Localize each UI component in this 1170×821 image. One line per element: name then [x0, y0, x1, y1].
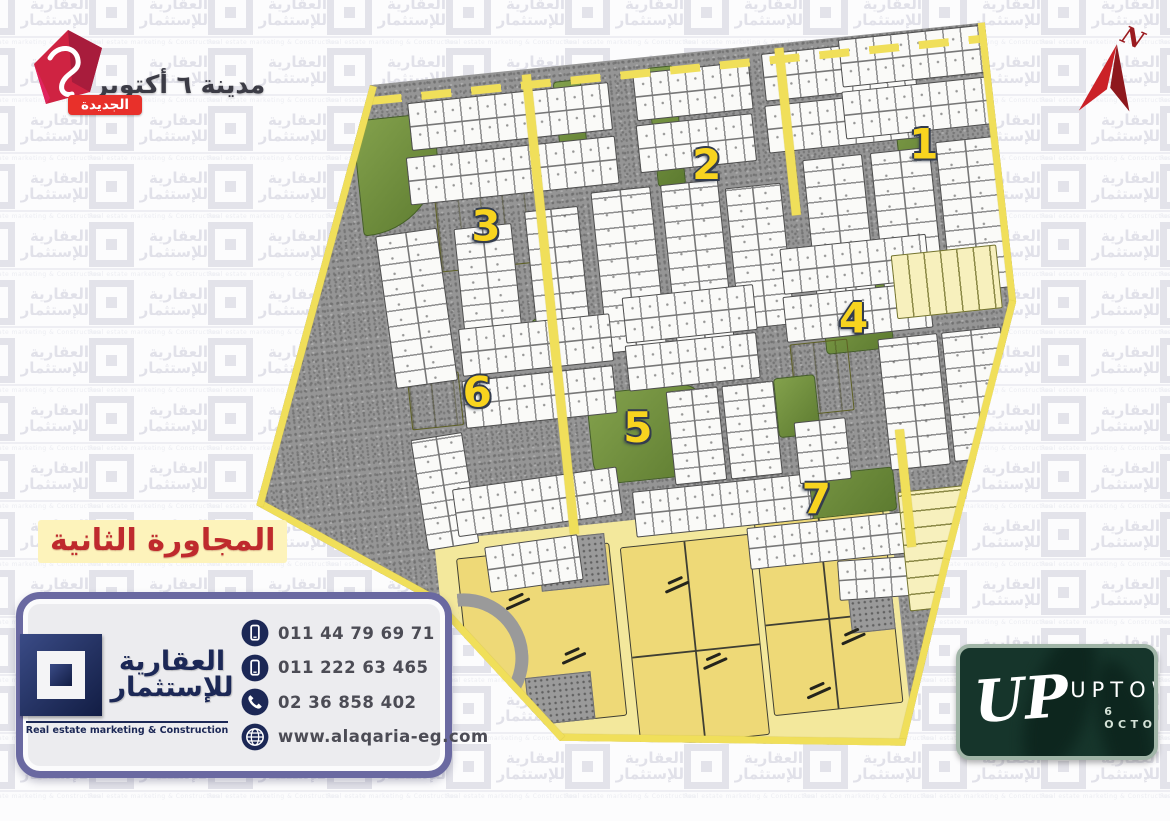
plot-block [666, 386, 728, 485]
contact-row: www.alaqaria-eg.com [241, 723, 489, 751]
contact-row: 011 222 63 465 [241, 654, 489, 682]
brand-logo: العقارية للإستثمار Real estate marketing… [33, 634, 221, 736]
watermark-tile: العقاريةللإستثمارReal estate marketing &… [1041, 220, 1160, 278]
watermark-tile: العقاريةللإستثمارReal estate marketing &… [0, 394, 89, 452]
mobile-icon [241, 619, 269, 647]
neighbourhood-title: المجاورة الثانية [38, 520, 287, 563]
watermark-tile: العقاريةللإستثمارReal estate marketing &… [1160, 104, 1170, 162]
contact-row: 02 36 858 402 [241, 688, 489, 716]
plot-block [721, 380, 783, 479]
district-3-label: 3 [471, 202, 500, 251]
watermark-tile: العقاريةللإستثمارReal estate marketing &… [0, 162, 89, 220]
service-gray-lot [525, 671, 596, 726]
globe-icon [241, 723, 269, 751]
perimeter-road [250, 83, 377, 507]
watermark-tile: العقاريةللإستثمارReal estate marketing &… [89, 162, 208, 220]
watermark-tile: العقاريةللإستثمارReal estate marketing &… [89, 452, 208, 510]
watermark-tile: العقاريةللإستثمارReal estate marketing &… [89, 220, 208, 278]
watermark-tile: العقاريةللإستثمارReal estate marketing &… [1160, 0, 1170, 46]
watermark-tile: العقاريةللإستثمارReal estate marketing &… [0, 336, 89, 394]
plot-block [877, 333, 950, 471]
watermark-tile: العقاريةللإستثمارReal estate marketing &… [1160, 46, 1170, 104]
watermark-tile: العقاريةللإستثمارReal estate marketing &… [1160, 394, 1170, 452]
mobile-icon [241, 654, 269, 682]
brand-square-icon [20, 634, 102, 716]
watermark-tile: العقاريةللإستثمارReal estate marketing &… [1041, 510, 1160, 568]
watermark-tile: العقاريةللإستثمارReal estate marketing &… [1041, 336, 1160, 394]
watermark-tile: العقاريةللإستثمارReal estate marketing &… [1041, 452, 1160, 510]
watermark-tile: العقاريةللإستثمارReal estate marketing &… [1160, 452, 1170, 510]
watermark-tile: العقاريةللإستثمارReal estate marketing &… [1041, 162, 1160, 220]
watermark-tile: العقاريةللإستثمارReal estate marketing &… [1041, 278, 1160, 336]
watermark-tile: العقاريةللإستثمارReal estate marketing &… [1160, 278, 1170, 336]
watermark-tile: العقاريةللإستثمارReal estate marketing &… [89, 394, 208, 452]
city-badge: الجديدة [68, 95, 142, 115]
service-plot [620, 534, 770, 748]
uptown-logo: UP UPTOWN 6 OCTOBER [956, 644, 1158, 760]
city-logo: مدينة ٦ أكتوبر الجديدة [16, 22, 266, 132]
watermark-tile: العقاريةللإستثمارReal estate marketing &… [0, 220, 89, 278]
contact-card: العقارية للإستثمار Real estate marketing… [16, 592, 452, 778]
district-6-label: 6 [463, 367, 492, 416]
district-5-label: 5 [623, 403, 652, 452]
watermark-tile: العقاريةللإستثمارReal estate marketing &… [1160, 336, 1170, 394]
district-7-label: 7 [802, 475, 831, 524]
watermark-tile: العقاريةللإستثمارReal estate marketing &… [1160, 162, 1170, 220]
brand-english-tagline: Real estate marketing & Construction [26, 721, 228, 736]
watermark-tile: العقاريةللإستثمارReal estate marketing &… [1160, 684, 1170, 742]
watermark-tile: العقاريةللإستثمارReal estate marketing &… [0, 278, 89, 336]
commercial-plot-block [891, 244, 1003, 319]
watermark-tile: العقاريةللإستثمارReal estate marketing &… [0, 452, 89, 510]
watermark-tile: العقاريةللإستثمارReal estate marketing &… [1160, 742, 1170, 800]
uptown-monogram: UP [972, 662, 1071, 736]
brand-arabic-line2: للإستثمار [110, 675, 233, 701]
phone-number-2: 011 222 63 465 [278, 658, 429, 677]
district-2-label: 2 [692, 140, 721, 189]
compass-n-label: N [1116, 19, 1150, 55]
watermark-tile: العقاريةللإستثمارReal estate marketing &… [1160, 568, 1170, 626]
phone-number-1: 011 44 79 69 71 [278, 624, 435, 643]
watermark-tile: العقاريةللإستثمارReal estate marketing &… [1041, 394, 1160, 452]
uptown-name: UPTOWN [1070, 678, 1158, 702]
district-1-label: 1 [909, 119, 938, 168]
contact-row: 011 44 79 69 71 [241, 619, 489, 647]
watermark-tile: العقاريةللإستثمارReal estate marketing &… [89, 336, 208, 394]
website-url: www.alaqaria-eg.com [278, 727, 489, 746]
phone-number-3: 02 36 858 402 [278, 693, 417, 712]
district-4-label: 4 [839, 294, 868, 343]
uptown-subtitle: 6 OCTOBER [1104, 705, 1158, 731]
watermark-tile: العقاريةللإستثمارReal estate marketing &… [1160, 220, 1170, 278]
watermark-tile: العقاريةللإستثمارReal estate marketing &… [1041, 568, 1160, 626]
watermark-tile: العقاريةللإستثمارReal estate marketing &… [1160, 510, 1170, 568]
neighbourhood-title-text: المجاورة الثانية [50, 523, 275, 558]
watermark-tile: العقاريةللإستثمارReal estate marketing &… [1160, 626, 1170, 684]
watermark-tile: العقاريةللإستثمارReal estate marketing &… [89, 278, 208, 336]
phone-icon [241, 688, 269, 716]
